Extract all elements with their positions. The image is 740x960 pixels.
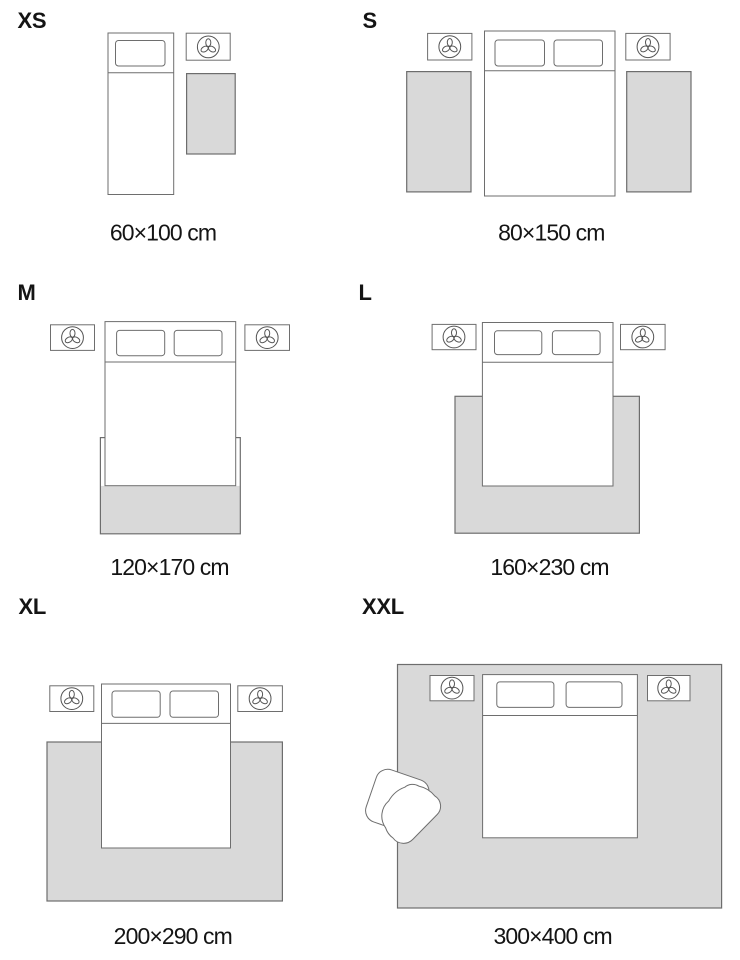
svg-text:300×400 cm: 300×400 cm	[493, 923, 611, 949]
svg-text:60×100 cm: 60×100 cm	[110, 220, 216, 246]
svg-text:XS: XS	[18, 8, 47, 33]
svg-text:XL: XL	[19, 594, 47, 619]
svg-text:160×230 cm: 160×230 cm	[490, 554, 608, 580]
svg-text:120×170 cm: 120×170 cm	[110, 554, 228, 580]
svg-text:200×290 cm: 200×290 cm	[114, 923, 232, 949]
svg-text:80×150 cm: 80×150 cm	[498, 220, 604, 246]
svg-text:M: M	[18, 280, 36, 305]
svg-text:S: S	[363, 8, 377, 33]
svg-text:XXL: XXL	[362, 594, 404, 619]
svg-text:L: L	[359, 280, 372, 305]
